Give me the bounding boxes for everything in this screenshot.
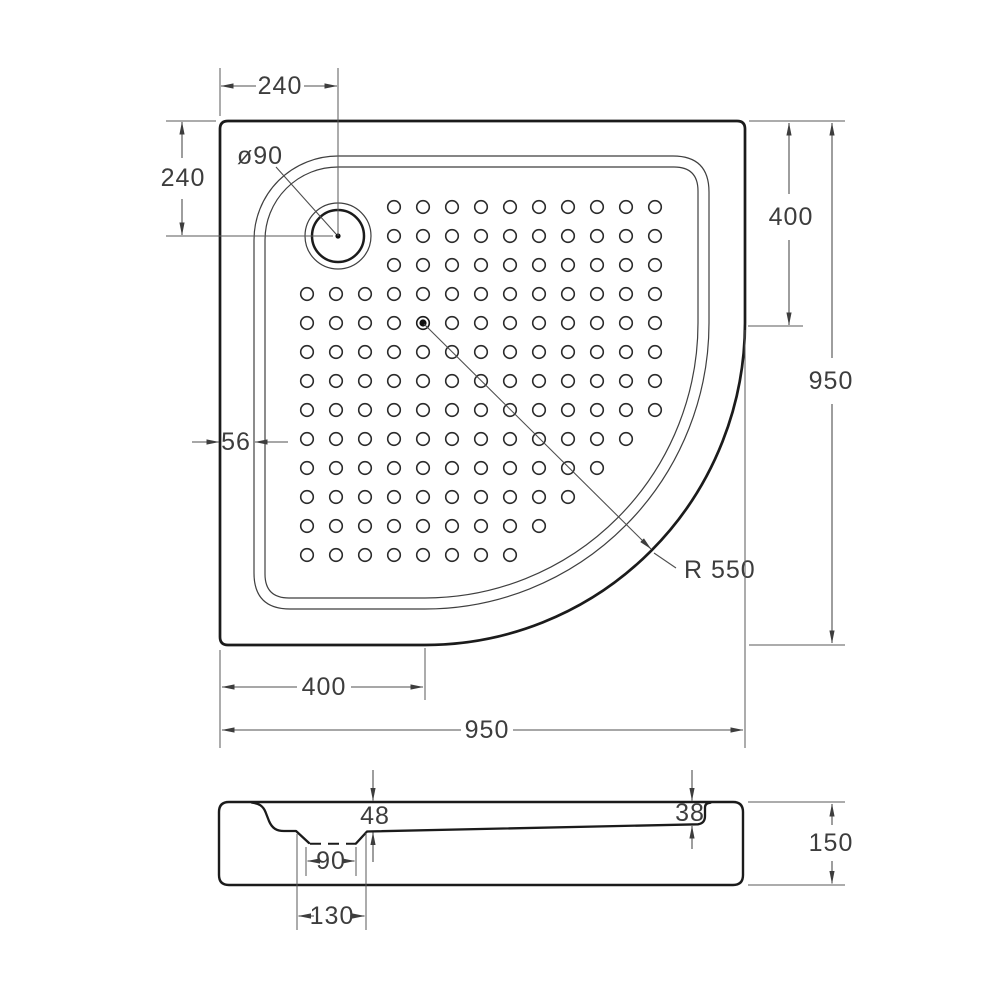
tread-dot	[591, 259, 604, 272]
tread-dot	[417, 288, 430, 301]
tread-dot	[562, 259, 575, 272]
tread-dot	[562, 375, 575, 388]
tread-dot	[533, 346, 546, 359]
tread-dot	[591, 375, 604, 388]
tread-dot	[504, 201, 517, 214]
tread-dot	[562, 288, 575, 301]
tread-dot	[620, 288, 633, 301]
dim-recess-width: 90	[306, 847, 356, 876]
tread-dot	[649, 317, 662, 330]
tread-dot	[475, 491, 488, 504]
tread-dot	[620, 375, 633, 388]
tread-dot	[504, 288, 517, 301]
tread-dot	[417, 549, 430, 562]
dim-label-left-height: 240	[161, 164, 206, 192]
tread-dot	[533, 433, 546, 446]
tread-dot	[417, 404, 430, 417]
tread-dot	[301, 433, 314, 446]
dim-label-total-height: 150	[809, 829, 854, 857]
tread-dot	[533, 317, 546, 330]
tread-dot	[301, 491, 314, 504]
tread-dot	[359, 317, 372, 330]
tread-dot	[388, 346, 401, 359]
tread-dot	[620, 346, 633, 359]
tread-dot	[475, 462, 488, 475]
tread-dot	[649, 346, 662, 359]
tread-dot	[417, 259, 430, 272]
tread-dot	[562, 230, 575, 243]
tread-dot	[620, 433, 633, 446]
tread-dot	[591, 462, 604, 475]
section-view: 48 38 90 130 1	[219, 770, 853, 930]
tread-dot	[446, 491, 459, 504]
tread-dot	[562, 317, 575, 330]
tread-dot	[562, 462, 575, 475]
tread-dot	[359, 404, 372, 417]
tread-dot	[330, 317, 343, 330]
drawing-canvas: R 550 240 240 ø90 56	[0, 0, 990, 990]
tread-dot	[504, 549, 517, 562]
tread-dot	[359, 346, 372, 359]
tread-dot	[504, 346, 517, 359]
tread-dot	[388, 520, 401, 533]
tread-dot	[417, 433, 430, 446]
tread-dot	[330, 491, 343, 504]
top-view: R 550 240 240 ø90 56	[161, 68, 854, 748]
dim-label-top-width: 240	[258, 72, 303, 100]
tread-dot	[388, 201, 401, 214]
tread-dot	[620, 404, 633, 417]
dim-rim-width: 56	[192, 428, 288, 456]
tread-dot	[330, 433, 343, 446]
tread-dot	[504, 317, 517, 330]
tread-dot	[533, 520, 546, 533]
tread-dot	[330, 375, 343, 388]
tread-dot	[301, 288, 314, 301]
tread-dot	[301, 520, 314, 533]
tread-dot	[446, 288, 459, 301]
tread-dot	[504, 462, 517, 475]
tread-dot	[533, 375, 546, 388]
tread-dot	[417, 230, 430, 243]
tread-dot	[533, 201, 546, 214]
tread-dot	[388, 259, 401, 272]
tread-dot	[446, 259, 459, 272]
tread-dot	[649, 259, 662, 272]
dim-drain-depth: 48	[360, 770, 390, 862]
dim-label-recess-offset: 130	[310, 902, 355, 930]
tread-dot	[475, 346, 488, 359]
tread-dot	[562, 346, 575, 359]
tread-dot	[649, 201, 662, 214]
tread-dot	[649, 375, 662, 388]
tread-dot	[475, 288, 488, 301]
section-outer-outline	[219, 802, 743, 885]
tread-dot	[504, 491, 517, 504]
tread-dot	[620, 201, 633, 214]
tread-dot	[359, 520, 372, 533]
tread-dot	[475, 201, 488, 214]
dim-total-height: 150	[748, 802, 853, 885]
tread-dot	[446, 433, 459, 446]
dim-label-edge-depth: 38	[675, 799, 705, 827]
tread-dot	[591, 433, 604, 446]
tread-dot	[417, 462, 430, 475]
tread-dot	[388, 404, 401, 417]
tread-dot	[533, 462, 546, 475]
tread-dot	[388, 549, 401, 562]
tread-dot	[475, 520, 488, 533]
tread-dot	[533, 259, 546, 272]
tread-dot	[446, 549, 459, 562]
tread-dot	[446, 462, 459, 475]
tread-dot	[649, 404, 662, 417]
tread-dot	[591, 230, 604, 243]
tread-dot	[330, 346, 343, 359]
tread-dot	[475, 259, 488, 272]
section-basin-profile-left	[252, 803, 309, 843]
tread-dot	[301, 375, 314, 388]
tread-dot	[533, 288, 546, 301]
dim-label-bottom-straight: 400	[302, 673, 347, 701]
tread-dot	[388, 230, 401, 243]
tread-dot	[562, 404, 575, 417]
tread-dot	[301, 317, 314, 330]
tread-dot	[359, 462, 372, 475]
tread-dot	[330, 549, 343, 562]
tread-dot	[475, 433, 488, 446]
tread-dot	[388, 491, 401, 504]
tread-dot	[330, 288, 343, 301]
shower-tray-technical-drawing: R 550 240 240 ø90 56	[0, 0, 990, 990]
tread-dot	[417, 346, 430, 359]
tread-dot	[330, 404, 343, 417]
tread-dot	[591, 288, 604, 301]
tread-dot	[591, 201, 604, 214]
tread-dot	[591, 346, 604, 359]
dim-label-right-depth: 400	[769, 203, 814, 231]
dim-edge-depth: 38	[675, 770, 705, 849]
dim-label-right-total: 950	[809, 367, 854, 395]
tread-dot	[330, 520, 343, 533]
tread-dot	[388, 433, 401, 446]
drain-leader	[276, 167, 336, 234]
tread-dot	[446, 375, 459, 388]
tread-dot	[562, 491, 575, 504]
radius-leader	[654, 553, 676, 568]
tread-dot	[533, 230, 546, 243]
dim-label-recess-width: 90	[316, 847, 346, 875]
tread-dot	[649, 230, 662, 243]
tread-dot	[620, 259, 633, 272]
tread-dot	[591, 404, 604, 417]
tread-dot	[446, 404, 459, 417]
tread-dot	[301, 462, 314, 475]
tread-dot	[417, 520, 430, 533]
tread-dot	[359, 375, 372, 388]
tread-dot	[504, 259, 517, 272]
tread-dot	[446, 201, 459, 214]
tread-dot	[359, 491, 372, 504]
tread-dot	[417, 491, 430, 504]
tread-dot	[504, 520, 517, 533]
dim-right-depth: 400	[748, 121, 845, 326]
tread-dot	[417, 201, 430, 214]
tread-dot	[359, 288, 372, 301]
dim-right-total: 950	[749, 123, 853, 645]
tread-dot	[446, 520, 459, 533]
tread-dot	[359, 549, 372, 562]
dim-label-rim-width: 56	[221, 428, 251, 456]
section-basin-profile-floor	[356, 803, 711, 844]
tread-dot	[446, 230, 459, 243]
dim-bottom-total: 950	[222, 330, 745, 748]
tread-dot	[591, 317, 604, 330]
dim-label-bottom-total: 950	[465, 716, 510, 744]
tread-dot	[359, 433, 372, 446]
tread-dot	[301, 346, 314, 359]
tread-dot	[533, 491, 546, 504]
tread-dot	[620, 230, 633, 243]
tread-dot	[475, 404, 488, 417]
tread-dot	[562, 201, 575, 214]
tread-dot	[301, 404, 314, 417]
tread-dot	[475, 317, 488, 330]
dim-bottom-straight: 400	[220, 648, 425, 748]
tread-dot	[417, 375, 430, 388]
dim-left-height: 240	[161, 121, 333, 236]
tread-dot	[475, 230, 488, 243]
tread-dot	[649, 288, 662, 301]
tread-dot	[504, 375, 517, 388]
tread-dot	[330, 462, 343, 475]
dim-label-drain-diameter: ø90	[237, 142, 283, 170]
tread-dot	[504, 433, 517, 446]
tread-dot	[388, 375, 401, 388]
tread-dot	[388, 317, 401, 330]
tread-dot	[620, 317, 633, 330]
tread-dot	[446, 317, 459, 330]
tread-dot	[388, 288, 401, 301]
tread-dot	[475, 549, 488, 562]
tread-dot	[504, 230, 517, 243]
tread-dot	[562, 433, 575, 446]
tread-dot	[533, 404, 546, 417]
tread-dot	[301, 549, 314, 562]
tread-dot	[388, 462, 401, 475]
dim-label-drain-depth: 48	[360, 802, 390, 830]
